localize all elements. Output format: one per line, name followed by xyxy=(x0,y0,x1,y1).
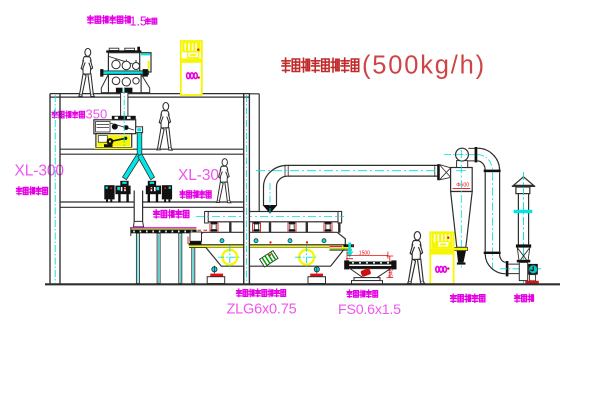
svg-text:FS0.6x1.5: FS0.6x1.5 xyxy=(338,302,401,318)
svg-text:XL-300: XL-300 xyxy=(15,163,65,180)
svg-text:Φ600: Φ600 xyxy=(456,183,469,189)
svg-text:ZLG6x0.75: ZLG6x0.75 xyxy=(227,302,297,318)
svg-text:1.5: 1.5 xyxy=(130,14,147,28)
svg-text:(500kg/h): (500kg/h) xyxy=(362,52,486,80)
